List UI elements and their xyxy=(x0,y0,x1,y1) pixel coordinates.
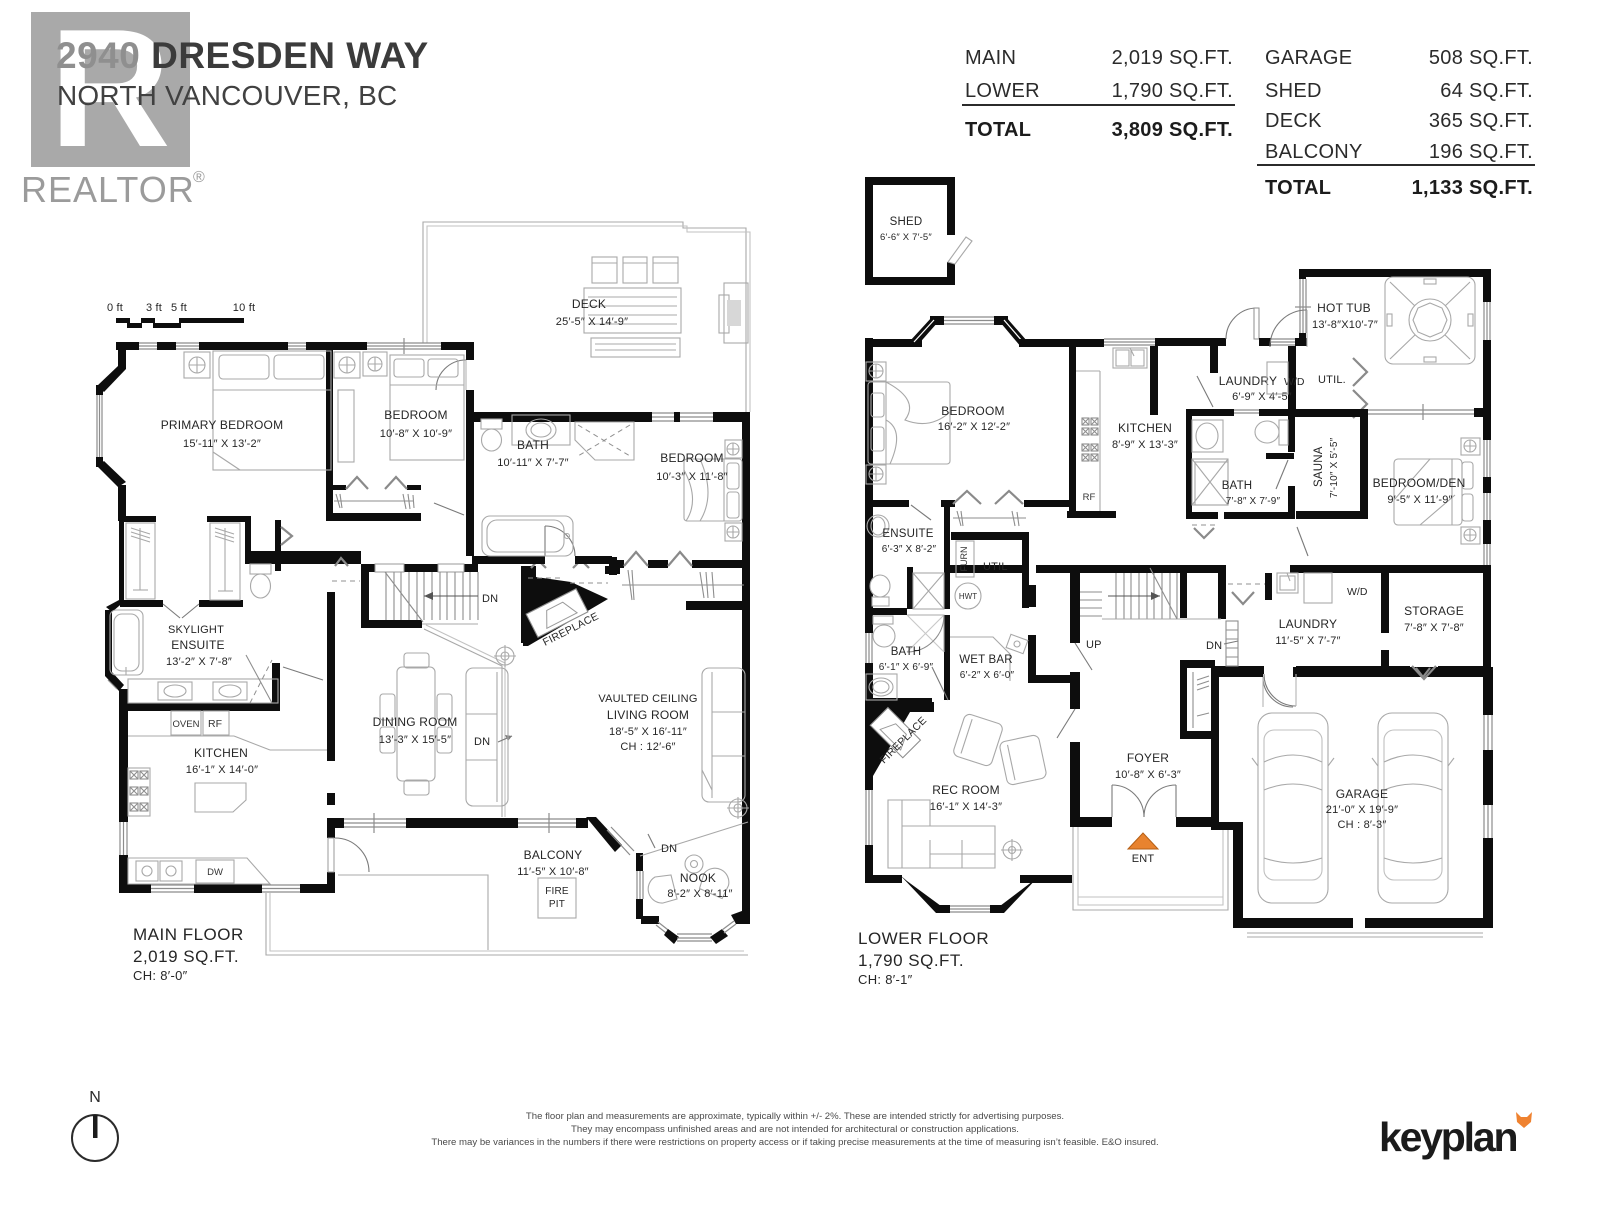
svg-text:6′-1″ X 6′-9″: 6′-1″ X 6′-9″ xyxy=(879,662,934,673)
svg-text:13′-2″ X 7′-8″: 13′-2″ X 7′-8″ xyxy=(166,656,232,668)
svg-text:OVEN: OVEN xyxy=(173,719,200,730)
svg-text:BEDROOM/DEN: BEDROOM/DEN xyxy=(1373,476,1466,490)
svg-text:6′-3″ X 8′-2″: 6′-3″ X 8′-2″ xyxy=(882,544,937,555)
svg-text:W/D: W/D xyxy=(1347,586,1368,598)
svg-text:6′-9″ X 4′-5″: 6′-9″ X 4′-5″ xyxy=(1232,391,1292,403)
svg-text:FURN: FURN xyxy=(959,547,969,572)
svg-text:W/D: W/D xyxy=(1284,376,1305,388)
svg-text:11′-5″ X 10′-8″: 11′-5″ X 10′-8″ xyxy=(517,866,589,878)
svg-text:UP: UP xyxy=(1086,639,1102,651)
svg-text:HWT: HWT xyxy=(959,592,977,601)
svg-text:2,019 SQ.FT.: 2,019 SQ.FT. xyxy=(133,947,239,966)
svg-text:DECK: DECK xyxy=(572,297,606,311)
svg-text:3 ft: 3 ft xyxy=(146,302,162,314)
svg-text:15′-11″ X 13′-2″: 15′-11″ X 13′-2″ xyxy=(183,438,261,450)
svg-text:NORTH VANCOUVER, BC: NORTH VANCOUVER, BC xyxy=(57,80,397,111)
svg-text:508 SQ.FT.: 508 SQ.FT. xyxy=(1429,47,1533,69)
svg-text:MAIN FLOOR: MAIN FLOOR xyxy=(133,925,244,944)
svg-text:2940 DRESDEN WAY: 2940 DRESDEN WAY xyxy=(56,35,429,76)
svg-text:13′-8″X10′-7″: 13′-8″X10′-7″ xyxy=(1312,319,1378,331)
svg-text:BEDROOM: BEDROOM xyxy=(384,408,447,422)
svg-text:DN: DN xyxy=(1206,640,1222,652)
svg-text:BATH: BATH xyxy=(517,438,549,452)
svg-text:21′-0″ X 19′-9″: 21′-0″ X 19′-9″ xyxy=(1326,804,1398,816)
svg-text:CH : 8′-3″: CH : 8′-3″ xyxy=(1338,819,1387,831)
svg-text:SKYLIGHT: SKYLIGHT xyxy=(168,624,224,636)
svg-text:18′-5″ X 16′-11″: 18′-5″ X 16′-11″ xyxy=(609,726,687,738)
svg-text:VAULTED CEILING: VAULTED CEILING xyxy=(598,693,697,705)
svg-text:9′-5″ X 11′-9″: 9′-5″ X 11′-9″ xyxy=(1387,494,1452,506)
svg-text:N: N xyxy=(89,1089,101,1106)
svg-text:BEDROOM: BEDROOM xyxy=(941,404,1004,418)
svg-text:1,790 SQ.FT.: 1,790 SQ.FT. xyxy=(858,951,964,970)
svg-text:64 SQ.FT.: 64 SQ.FT. xyxy=(1440,80,1533,102)
svg-text:REALTOR: REALTOR xyxy=(21,169,195,210)
svg-text:NOOK: NOOK xyxy=(680,871,716,885)
svg-text:7′-10″ X 5′-5″: 7′-10″ X 5′-5″ xyxy=(1329,437,1340,498)
svg-text:LOWER: LOWER xyxy=(965,80,1040,102)
svg-text:CH : 12′-6″: CH : 12′-6″ xyxy=(620,741,675,753)
svg-text:16′-1″ X 14′-3″: 16′-1″ X 14′-3″ xyxy=(930,801,1002,813)
svg-text:ENT: ENT xyxy=(1132,853,1155,865)
svg-text:BATH: BATH xyxy=(891,646,922,658)
svg-text:7′-8″ X 7′-8″: 7′-8″ X 7′-8″ xyxy=(1404,622,1464,634)
svg-text:TOTAL: TOTAL xyxy=(965,119,1031,141)
svg-text:CH: 8′-1″: CH: 8′-1″ xyxy=(858,972,913,987)
svg-text:3,809 SQ.FT.: 3,809 SQ.FT. xyxy=(1112,119,1233,141)
svg-text:6′-6″ X 7′-5″: 6′-6″ X 7′-5″ xyxy=(880,232,932,243)
svg-text:16′-2″ X 12′-2″: 16′-2″ X 12′-2″ xyxy=(938,421,1010,433)
svg-text:UTIL.: UTIL. xyxy=(1318,374,1346,386)
svg-text:8′-9″ X 13′-3″: 8′-9″ X 13′-3″ xyxy=(1112,439,1178,451)
svg-text:SHED: SHED xyxy=(890,216,923,228)
svg-text:10′-8″ X 10′-9″: 10′-8″ X 10′-9″ xyxy=(380,428,452,440)
svg-text:CH: 8′-0″: CH: 8′-0″ xyxy=(133,968,188,983)
svg-text:ENSUITE: ENSUITE xyxy=(171,638,224,652)
svg-text:LAUNDRY: LAUNDRY xyxy=(1279,617,1338,631)
svg-text:STORAGE: STORAGE xyxy=(1404,604,1464,618)
svg-text:13′-3″ X 15′-5″: 13′-3″ X 15′-5″ xyxy=(379,734,451,746)
svg-text:LOWER FLOOR: LOWER FLOOR xyxy=(858,929,989,948)
svg-text:2,019 SQ.FT.: 2,019 SQ.FT. xyxy=(1112,47,1233,69)
svg-text:10′-3″ X 11′-8″: 10′-3″ X 11′-8″ xyxy=(656,471,728,483)
svg-text:BALCONY: BALCONY xyxy=(524,848,583,862)
svg-text:LAUNDRY: LAUNDRY xyxy=(1219,374,1278,388)
svg-text:DW: DW xyxy=(207,867,223,878)
svg-text:BATH: BATH xyxy=(1222,480,1253,492)
svg-text:7′-8″ X 7′-9″: 7′-8″ X 7′-9″ xyxy=(1226,496,1281,507)
svg-text:SHED: SHED xyxy=(1265,80,1322,102)
svg-text:DECK: DECK xyxy=(1265,110,1322,132)
svg-text:UTIL: UTIL xyxy=(983,561,1008,573)
svg-text:196 SQ.FT.: 196 SQ.FT. xyxy=(1429,141,1533,163)
svg-text:keyplan: keyplan xyxy=(1379,1114,1516,1160)
svg-text:KITCHEN: KITCHEN xyxy=(1118,421,1172,435)
svg-text:BEDROOM: BEDROOM xyxy=(660,451,723,465)
svg-text:0 ft: 0 ft xyxy=(107,302,123,314)
svg-text:They may encompass unfinished: They may encompass unfinished areas and … xyxy=(571,1124,1019,1135)
svg-text:6′-2″ X 6′-0″: 6′-2″ X 6′-0″ xyxy=(960,670,1015,681)
svg-text:REC ROOM: REC ROOM xyxy=(932,783,1000,797)
svg-text:11′-5″ X 7′-7″: 11′-5″ X 7′-7″ xyxy=(1275,635,1340,647)
svg-text:SAUNA: SAUNA xyxy=(1313,446,1325,487)
svg-text:FIRE: FIRE xyxy=(545,886,569,897)
svg-text:DINING ROOM: DINING ROOM xyxy=(373,715,458,729)
svg-text:10′-8″ X 6′-3″: 10′-8″ X 6′-3″ xyxy=(1115,769,1181,781)
svg-text:25′-5″ X 14′-9″: 25′-5″ X 14′-9″ xyxy=(556,316,628,328)
svg-text:MAIN: MAIN xyxy=(965,47,1016,69)
svg-text:8′-2″ X 8′-11″: 8′-2″ X 8′-11″ xyxy=(667,888,732,900)
svg-text:PIT: PIT xyxy=(549,899,565,910)
svg-text:FOYER: FOYER xyxy=(1127,751,1169,765)
svg-text:PRIMARY BEDROOM: PRIMARY BEDROOM xyxy=(161,418,284,432)
svg-text:GARAGE: GARAGE xyxy=(1336,787,1389,801)
svg-text:10′-11″ X 7′-7″: 10′-11″ X 7′-7″ xyxy=(497,457,569,469)
svg-text:LIVING ROOM: LIVING ROOM xyxy=(607,708,689,722)
svg-text:RF: RF xyxy=(1083,492,1096,503)
svg-text:®: ® xyxy=(193,169,205,186)
svg-text:There may be variances in the: There may be variances in the numbers if… xyxy=(431,1137,1158,1148)
svg-text:HOT TUB: HOT TUB xyxy=(1317,301,1371,315)
svg-text:The floor plan and measurement: The floor plan and measurements are appr… xyxy=(526,1111,1064,1122)
svg-text:BALCONY: BALCONY xyxy=(1265,141,1363,163)
svg-text:GARAGE: GARAGE xyxy=(1265,47,1352,69)
svg-text:DN: DN xyxy=(482,593,498,605)
svg-text:KITCHEN: KITCHEN xyxy=(194,746,248,760)
svg-text:5 ft: 5 ft xyxy=(171,302,187,314)
svg-text:ENSUITE: ENSUITE xyxy=(882,528,933,540)
svg-text:TOTAL: TOTAL xyxy=(1265,177,1331,199)
svg-text:1,790 SQ.FT.: 1,790 SQ.FT. xyxy=(1112,80,1233,102)
svg-text:10 ft: 10 ft xyxy=(233,302,255,314)
svg-text:RF: RF xyxy=(208,718,222,730)
svg-text:DN: DN xyxy=(474,736,490,748)
svg-text:WET BAR: WET BAR xyxy=(959,654,1013,666)
svg-text:DN: DN xyxy=(661,843,677,855)
svg-text:365 SQ.FT.: 365 SQ.FT. xyxy=(1429,110,1533,132)
svg-text:16′-1″ X 14′-0″: 16′-1″ X 14′-0″ xyxy=(186,764,258,776)
svg-text:1,133 SQ.FT.: 1,133 SQ.FT. xyxy=(1412,177,1533,199)
